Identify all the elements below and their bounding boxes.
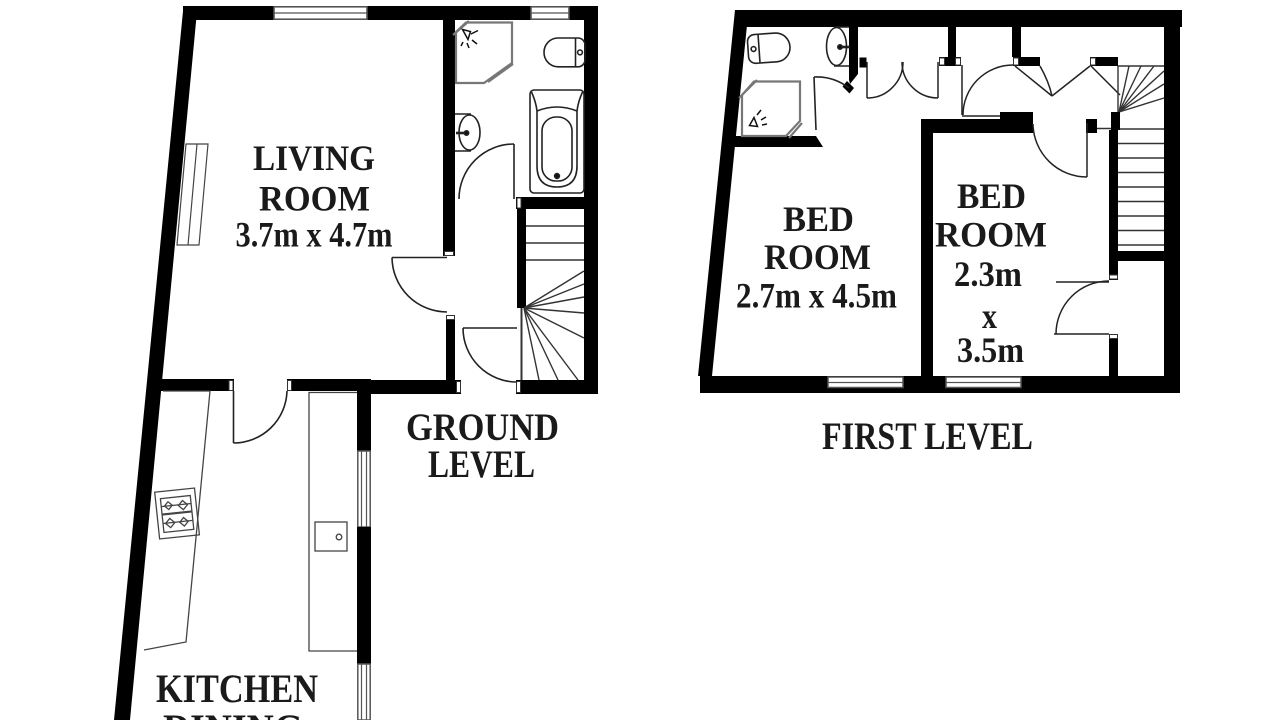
svg-text:3.5m: 3.5m [957,330,1024,370]
svg-text:ROOM: ROOM [935,215,1047,255]
svg-text:LEVEL: LEVEL [428,443,535,486]
svg-text:BED: BED [957,176,1026,216]
svg-text:ROOM: ROOM [259,179,370,219]
svg-text:3.7m x 4.7m: 3.7m x 4.7m [236,215,393,255]
svg-text:FIRST LEVEL: FIRST LEVEL [822,415,1033,458]
svg-text:KITCHEN: KITCHEN [156,666,318,711]
svg-text:2.3m: 2.3m [954,254,1022,294]
svg-text:2.7m x 4.5m: 2.7m x 4.5m [736,276,897,316]
svg-text:BED: BED [783,199,854,239]
svg-text:DINING: DINING [163,706,303,720]
svg-text:ROOM: ROOM [764,237,871,277]
svg-text:LIVING: LIVING [253,138,375,178]
